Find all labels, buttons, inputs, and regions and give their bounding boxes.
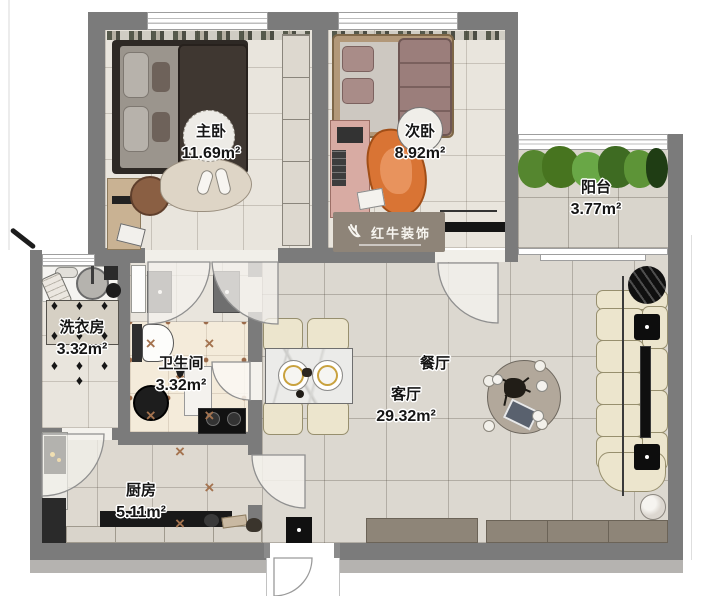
window [147, 12, 268, 30]
room-area: 3.77m² [571, 199, 622, 221]
kettle [204, 514, 219, 527]
ball-lamp [640, 494, 666, 520]
door-jamb [264, 543, 270, 558]
room-label-kitchen: 厨房 5.11m² [116, 480, 166, 524]
room-label-living: 客厅 29.32m² [376, 384, 436, 428]
wall [505, 12, 518, 262]
pen-mark [10, 227, 37, 249]
wardrobe [282, 34, 310, 246]
window [42, 254, 95, 266]
wall [248, 400, 262, 455]
door-threshold [435, 250, 505, 262]
wall [88, 12, 147, 30]
room-name: 客厅 [376, 384, 436, 406]
shower-fixture [131, 265, 146, 313]
shelf [332, 150, 346, 186]
door-threshold [248, 362, 262, 400]
door-jamb [334, 543, 340, 558]
watermark-text: 红牛装饰 [371, 223, 431, 242]
monitor [337, 127, 363, 143]
window [338, 12, 458, 30]
pot [246, 518, 262, 532]
room-area: 5.11m² [116, 502, 166, 524]
cushion [152, 112, 170, 142]
exterior-line [8, 0, 10, 250]
wall [340, 543, 683, 560]
floor-plan: × × × × × × × × × [0, 0, 704, 596]
floor-mat-dot [158, 290, 162, 294]
burner [227, 412, 241, 426]
wall [248, 312, 262, 365]
room-label-dining: 餐厅 [420, 353, 450, 375]
faucet [91, 266, 94, 284]
cushion [152, 62, 170, 92]
pillow [342, 46, 374, 72]
room-area: 11.69m² [182, 143, 241, 165]
entry-mat-dot [297, 528, 301, 532]
room-area: 3.32m² [57, 339, 108, 361]
tv-console [440, 210, 497, 212]
floor-mat-dot [225, 290, 229, 294]
bull-swoosh-icon [347, 223, 367, 241]
side-table-dot [645, 455, 649, 459]
sofa-seat [596, 340, 644, 373]
shoe-cabinet [366, 518, 478, 543]
dining-chair [307, 400, 349, 435]
room-area: 29.32m² [376, 406, 436, 428]
table-leg [534, 360, 546, 372]
cup [532, 410, 544, 422]
corner-box [104, 266, 118, 280]
door-threshold [62, 428, 112, 440]
floor-lamp-pole [622, 276, 624, 496]
room-name: 卫生间 [156, 353, 207, 375]
brand-watermark-rug: 红牛装饰 [333, 212, 445, 252]
curtain-garland [107, 31, 310, 40]
plate [312, 360, 343, 391]
watermark-subtext-line [359, 244, 421, 246]
dining-chair [263, 318, 303, 352]
entry-nook [266, 543, 340, 596]
room-area: 8.92m² [395, 143, 446, 165]
plant [646, 148, 668, 188]
room-label-laundry: 洗衣房 3.32m² [57, 317, 108, 361]
exterior-wall-band [30, 560, 683, 573]
wall [95, 252, 118, 266]
wall [30, 543, 266, 560]
pillow [342, 78, 374, 104]
sofa-seat [596, 404, 644, 437]
sofa-seat [596, 372, 644, 405]
kitchen-base-cabinets [66, 526, 262, 543]
wall [30, 250, 42, 560]
flame-dot [57, 458, 61, 462]
wall [312, 30, 328, 248]
table-leg [483, 420, 495, 432]
console-bar [640, 346, 651, 438]
toilet-tank [132, 324, 142, 362]
side-table-dot [645, 325, 649, 329]
pillow [123, 52, 149, 98]
room-label-bathroom: 卫生间 3.32m² [156, 353, 207, 397]
shoe-cabinet [486, 520, 668, 543]
door-threshold [248, 277, 262, 312]
room-name: 餐厅 [420, 353, 450, 375]
tv-soundbar [443, 222, 505, 232]
room-area: 3.32m² [156, 375, 207, 397]
pillow [123, 106, 149, 152]
room-name: 阳台 [571, 177, 622, 199]
food-item [296, 390, 304, 398]
door-threshold [145, 250, 278, 262]
room-name: 主卧 [182, 121, 241, 143]
room-name: 厨房 [116, 480, 166, 502]
kitchen-corner-cabinet [42, 498, 66, 543]
cup [536, 380, 548, 392]
exterior-line [691, 235, 692, 560]
room-name: 洗衣房 [57, 317, 108, 339]
room-label-balcony: 阳台 3.77m² [571, 177, 622, 221]
wall [88, 30, 105, 252]
flame-dot [50, 452, 55, 457]
wall [112, 428, 118, 440]
wall [668, 134, 683, 560]
room-label-master-bedroom: 主卧 11.69m² [182, 121, 241, 165]
dining-chair [263, 400, 303, 435]
food-item [302, 368, 312, 377]
scrub-brush [106, 283, 121, 298]
table-plant [504, 378, 526, 398]
room-name: 次卧 [395, 121, 446, 143]
stove [44, 436, 66, 474]
room-label-second-bedroom: 次卧 8.92m² [395, 121, 446, 165]
dining-chair [307, 318, 349, 352]
sliding-door [540, 254, 646, 261]
cup [492, 374, 503, 385]
burner [206, 412, 220, 426]
wall [268, 12, 338, 30]
floor-lamp-shade [628, 266, 666, 304]
